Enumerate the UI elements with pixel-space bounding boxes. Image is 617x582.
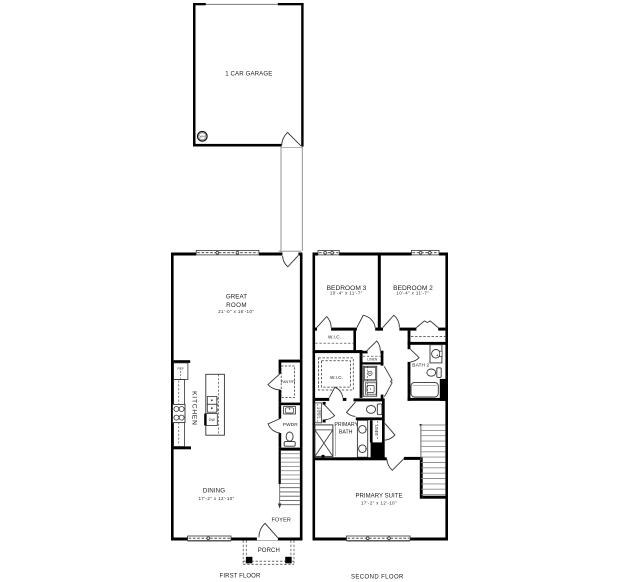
svg-text:ROOM: ROOM — [226, 302, 247, 309]
svg-text:SECOND FLOOR: SECOND FLOOR — [351, 575, 404, 581]
svg-text:W.I.C.: W.I.C. — [330, 375, 343, 380]
svg-text:BATH: BATH — [339, 429, 353, 435]
svg-text:PANTRY: PANTRY — [281, 380, 296, 384]
svg-text:17'-2" x 12'-10": 17'-2" x 12'-10" — [361, 501, 397, 506]
svg-text:W.I.C.: W.I.C. — [328, 335, 341, 340]
svg-text:FIRST FLOOR: FIRST FLOOR — [220, 574, 261, 580]
svg-text:1 CAR GARAGE: 1 CAR GARAGE — [225, 71, 272, 78]
svg-text:LINEN: LINEN — [374, 425, 378, 436]
svg-text:LINEN: LINEN — [318, 408, 322, 419]
svg-text:DW: DW — [209, 418, 215, 422]
svg-text:KITCHEN: KITCHEN — [191, 391, 198, 426]
svg-text:PRIMARY SUITE: PRIMARY SUITE — [355, 494, 402, 500]
svg-text:10'-4" x 11'-7": 10'-4" x 11'-7" — [396, 291, 429, 296]
svg-text:21'-0" x 16'-10": 21'-0" x 16'-10" — [218, 309, 254, 314]
svg-text:PORCH: PORCH — [258, 548, 280, 554]
svg-text:WH: WH — [200, 135, 205, 139]
svg-text:10'-4" x 11'-7": 10'-4" x 11'-7" — [330, 291, 363, 296]
svg-text:DINING: DINING — [203, 487, 225, 494]
svg-text:17'-2" x 12'-10": 17'-2" x 12'-10" — [199, 496, 235, 501]
svg-text:BATH 2: BATH 2 — [412, 362, 429, 368]
svg-text:FOYER: FOYER — [271, 518, 290, 524]
svg-text:PWDR: PWDR — [283, 422, 298, 428]
svg-text:GREAT: GREAT — [226, 293, 247, 300]
svg-text:PRIMARY: PRIMARY — [334, 422, 358, 428]
svg-text:REF: REF — [177, 366, 184, 370]
svg-text:LINEN: LINEN — [367, 358, 377, 362]
